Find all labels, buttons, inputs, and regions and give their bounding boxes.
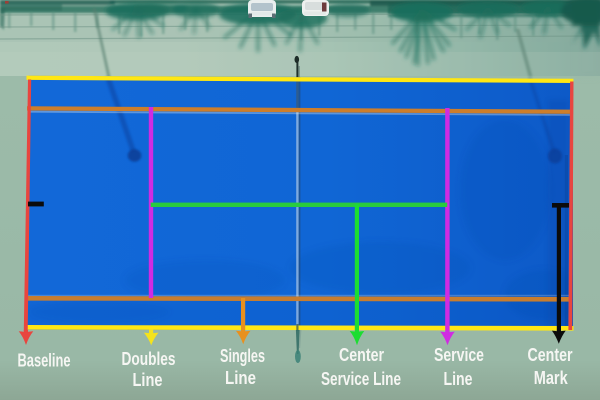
svg-text:Service: Service bbox=[434, 345, 484, 365]
svg-text:Line: Line bbox=[444, 369, 473, 389]
svg-text:Center: Center bbox=[339, 345, 384, 365]
svg-text:Mark: Mark bbox=[534, 368, 569, 388]
svg-text:Line: Line bbox=[225, 368, 256, 388]
svg-text:Line: Line bbox=[133, 370, 163, 390]
svg-text:Singles: Singles bbox=[220, 346, 265, 366]
svg-text:Doubles: Doubles bbox=[122, 349, 176, 369]
svg-text:Baseline: Baseline bbox=[18, 351, 71, 371]
svg-text:Center: Center bbox=[528, 345, 573, 365]
svg-text:Service Line: Service Line bbox=[321, 369, 401, 389]
